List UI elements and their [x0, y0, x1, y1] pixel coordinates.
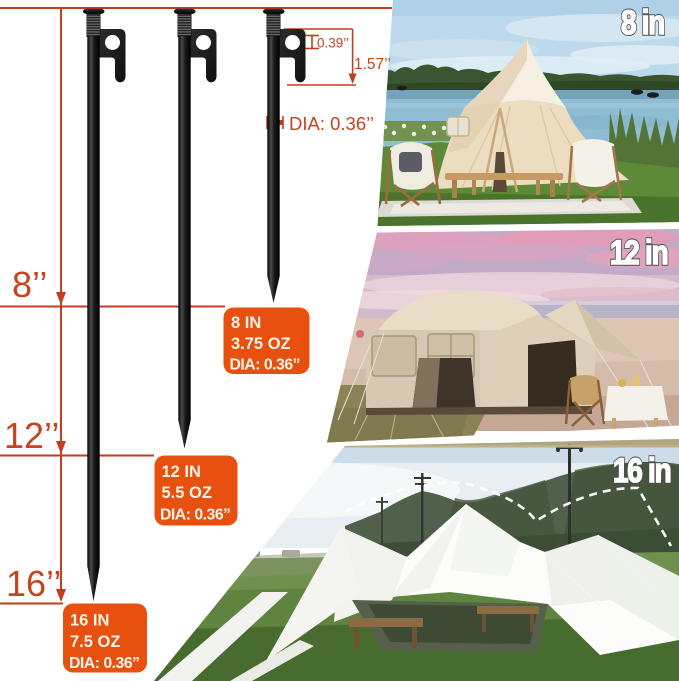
svg-text:DIA: 0.36’’: DIA: 0.36’’: [160, 507, 230, 524]
svg-text:16’’: 16’’: [6, 563, 61, 604]
svg-text:DIA: 0.36’’: DIA: 0.36’’: [230, 357, 300, 374]
svg-text:12 IN: 12 IN: [162, 463, 201, 481]
svg-text:16 IN: 16 IN: [70, 612, 109, 630]
svg-text:1.57’’: 1.57’’: [354, 56, 391, 73]
svg-text:8 IN: 8 IN: [231, 314, 261, 332]
svg-text:DIA: 0.36’’: DIA: 0.36’’: [289, 113, 374, 134]
svg-text:5.5 OZ: 5.5 OZ: [162, 484, 212, 502]
svg-text:8’’: 8’’: [12, 264, 47, 305]
svg-text:0.39’’: 0.39’’: [317, 36, 349, 51]
svg-text:8 in: 8 in: [621, 3, 664, 41]
svg-text:12’’: 12’’: [4, 415, 59, 456]
svg-text:3.75 OZ: 3.75 OZ: [231, 335, 291, 353]
svg-text:12 in: 12 in: [610, 233, 668, 271]
svg-text:DIA: 0.36’’: DIA: 0.36’’: [69, 655, 139, 672]
svg-text:7.5 OZ: 7.5 OZ: [70, 633, 120, 651]
svg-text:16 in: 16 in: [613, 451, 671, 489]
